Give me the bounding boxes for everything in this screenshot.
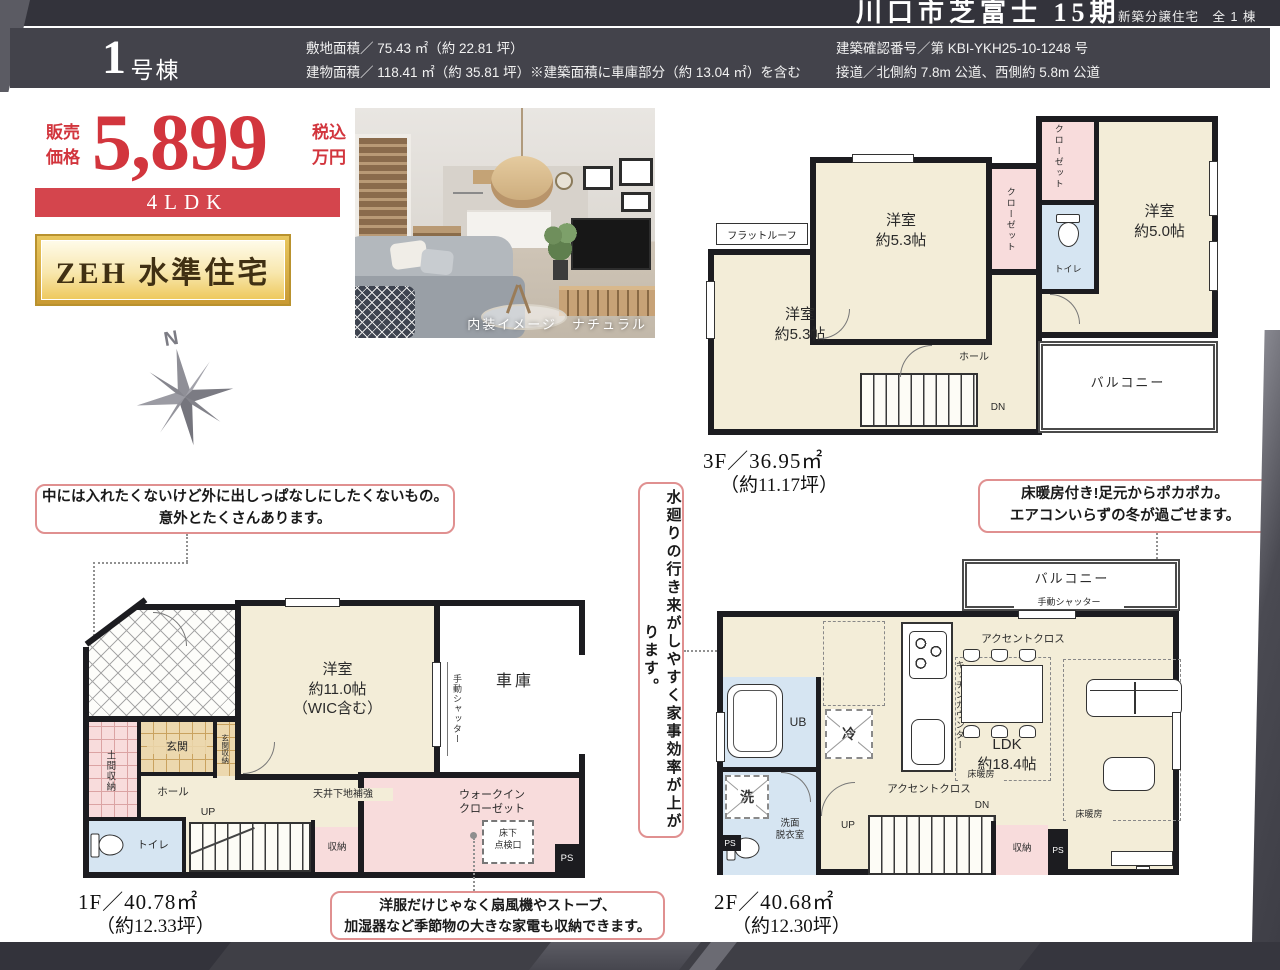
- building-area-text: 建物面積／ 118.41 ㎡（約 35.81 坪）※建築面積に車庫部分（約 13…: [306, 61, 801, 81]
- room-label: 洋室 約5.3帖: [812, 211, 990, 250]
- sink-icon: [911, 719, 945, 765]
- door-arc: [1050, 294, 1080, 324]
- window: [285, 598, 340, 607]
- room-label: ホール: [141, 786, 205, 800]
- photo-plant-pot: [553, 260, 568, 280]
- zeh-badge: ZEH 水準住宅: [35, 234, 291, 306]
- floor-type-banner: 4LDK: [35, 188, 340, 217]
- wall: [83, 647, 89, 722]
- road-access-text: 接道／北側約 7.8m 公道、西側約 5.8m 公道: [836, 61, 1100, 81]
- window: [1209, 161, 1218, 216]
- room-label: ホール: [942, 351, 1006, 364]
- fridge-space: 冷: [825, 709, 873, 759]
- compass: N: [130, 330, 240, 448]
- room-label: 玄関: [147, 740, 207, 754]
- wall: [182, 817, 186, 872]
- room-label: 冷: [840, 724, 858, 744]
- toilet-icon: [91, 834, 124, 858]
- photo-caption: 内装イメージ ナチュラル: [467, 314, 647, 333]
- wall: [1042, 200, 1094, 205]
- room-2f-main: UB 洗面 脱衣室 洗 冷 キッチンカウンター アクセントクロス: [717, 611, 1179, 875]
- room-label: 床下 点検口: [486, 828, 530, 851]
- room-label: アクセントクロス: [873, 783, 985, 797]
- wall: [405, 600, 585, 606]
- room-label: 収納: [998, 843, 1046, 855]
- photo-throw-patterned: [355, 286, 415, 338]
- photo-pillow-gray: [420, 248, 454, 275]
- price-label: 販売 価格: [46, 121, 80, 170]
- deco-bar-piece: [529, 942, 701, 970]
- kitchen-counter: [901, 622, 953, 772]
- window: [1018, 610, 1076, 619]
- room-label: ウォークイン クローゼット: [432, 788, 552, 817]
- wall: [579, 600, 585, 655]
- photo-frame-1: [583, 166, 613, 190]
- interior-photo: 内装イメージ ナチュラル: [355, 108, 655, 338]
- wall: [137, 772, 217, 776]
- window: [1209, 241, 1218, 291]
- zeh-badge-text: ZEH 水準住宅: [56, 248, 271, 292]
- window: [852, 154, 914, 163]
- ps-shaft: PS: [719, 835, 741, 851]
- door-arc: [821, 782, 855, 816]
- room-label: トイレ: [129, 839, 177, 853]
- room-label: クローゼット: [1004, 175, 1016, 265]
- room-label: 手動シャッター: [1014, 597, 1124, 609]
- tv-stand: [1136, 866, 1150, 870]
- room-1f-toilet: トイレ: [89, 821, 182, 872]
- wall: [579, 754, 585, 774]
- photo-dining-table: [413, 226, 461, 236]
- window: [432, 662, 441, 747]
- room-label: 土間収納: [103, 730, 115, 812]
- dotted-leader: [473, 838, 475, 891]
- room-label: 玄関収納: [220, 724, 230, 774]
- photo-plant-leaves: [543, 220, 577, 264]
- room-label: バルコニー: [1058, 375, 1198, 392]
- callout-floor-heating: 床暖房付き!足元からポカポカ。 エアコンいらずの冬が過ごせます。: [978, 479, 1272, 533]
- chair-icon: [991, 649, 1008, 662]
- flat-roof-tag: フラットルーフ: [716, 223, 808, 245]
- dotted-leader: [93, 562, 188, 564]
- stairs-direction-label: UP: [831, 819, 865, 832]
- bathtub-inner: [733, 690, 777, 752]
- photo-small-pendants: [453, 192, 483, 208]
- bathtub-icon: [727, 684, 783, 758]
- wall: [816, 677, 821, 875]
- photo-pendant-cord: [521, 108, 523, 160]
- top-bar: 川口市芝富士 15期 新築分譲住宅 全 1 棟: [0, 0, 1280, 26]
- room-label: 車庫: [475, 672, 555, 693]
- unit-banner: 1 号棟: [102, 30, 180, 85]
- room-label: 天井下地補強: [293, 788, 393, 801]
- dotted-leader: [186, 534, 188, 562]
- sofa-back-line: [1090, 683, 1178, 691]
- room-label: 床暖房: [959, 769, 1003, 781]
- toilet-icon: [1056, 214, 1080, 247]
- room-label: 収納: [315, 842, 359, 854]
- room-label: トイレ: [1042, 264, 1094, 276]
- stairs-direction-label: DN: [967, 799, 997, 812]
- compass-rose-icon: [122, 337, 248, 457]
- deco-right-strip: [1252, 330, 1280, 942]
- pantry-dashed-area: [823, 621, 885, 706]
- toilet-bowl: [1058, 222, 1079, 247]
- floor-hatch: 床下 点検口: [482, 820, 534, 864]
- sofa-icon: [1086, 679, 1182, 717]
- price-amount: 5,899: [92, 98, 267, 189]
- room-label: バルコニー: [1002, 571, 1142, 588]
- callout-water-flow: 水廻りの行き来がしやすく家事効率が上がります。: [638, 482, 684, 838]
- header-banner: 1 号棟 敷地面積／ 75.43 ㎡（約 22.81 坪） 建物面積／ 118.…: [10, 28, 1270, 88]
- window: [1172, 712, 1181, 770]
- real-estate-flyer: { "top_bar": { "title": "川口市芝富士 15期", "s…: [0, 0, 1280, 970]
- room-3f-closet-2: [1042, 122, 1094, 200]
- photo-frame-2: [619, 158, 653, 186]
- room-label: PS: [1052, 845, 1063, 855]
- sales-type-label: 新築分譲住宅 全 1 棟: [1118, 6, 1256, 25]
- room-label: アクセントクロス: [968, 633, 1078, 647]
- plan-1f: 土間収納 玄関 玄関収納 ホール UP トイレ 収納: [75, 592, 590, 884]
- photo-frame-3: [621, 192, 651, 212]
- toilet-bowl: [99, 835, 124, 856]
- callout-text: 水廻りの行き来がしやすく家事効率が上がります。: [639, 484, 684, 836]
- tv-icon: [1111, 851, 1173, 866]
- room-label: 洗: [738, 787, 756, 807]
- stove-icon: [909, 631, 947, 679]
- room-label: PS: [561, 853, 574, 864]
- deco-bar-piece: [0, 942, 231, 970]
- photo-tv-board: [559, 286, 655, 316]
- room-label: 洗面 脱衣室: [763, 818, 817, 843]
- wall: [137, 604, 238, 610]
- window: [716, 712, 725, 762]
- coffee-table-icon: [1103, 757, 1155, 791]
- ps-shaft: PS: [1048, 829, 1068, 871]
- room-label: 洋室 約5.0帖: [1102, 202, 1217, 241]
- photo-tv: [571, 218, 651, 270]
- room-label: 洋室 約11.0帖 （WIC含む）: [250, 660, 425, 719]
- room-2f-ub: UB: [723, 677, 818, 767]
- stairs-direction-label: DN: [983, 401, 1013, 414]
- callout-outdoor-storage: 中には入れたくないけど外に出しっぱなしにしたくないもの。 意外とたくさんあります…: [35, 484, 455, 534]
- ps-shaft: PS: [555, 844, 579, 872]
- washer-space: 洗: [725, 775, 769, 819]
- room-label: 手動シャッター: [451, 674, 464, 744]
- room-label: クローゼット: [1052, 123, 1064, 191]
- dining-table: [961, 665, 1043, 723]
- room-label: 床暖房: [1067, 809, 1111, 821]
- stairs-direction-label: UP: [193, 806, 223, 820]
- plan-3f-area-tsubo: （約11.17坪）: [720, 470, 838, 497]
- zeh-badge-inner: ZEH 水準住宅: [41, 240, 285, 300]
- room-label: フラットルーフ: [727, 227, 796, 242]
- project-title: 川口市芝富士 15期: [856, 0, 1121, 26]
- photo-pendant-lamp: [491, 156, 553, 208]
- flyer-page: 川口市芝富士 15期 新築分譲住宅 全 1 棟 1 号棟 敷地面積／ 75.43…: [0, 0, 1280, 970]
- callout-wic-storage: 洋服だけじゃなく扇風機やストーブ、 加湿器など季節物の大きな家電も収納できます。: [330, 891, 665, 940]
- stairs-2f: [868, 815, 996, 875]
- stairs-3f: [860, 373, 978, 427]
- plan-3f: トイレ 洋室 約5.0帖 クローゼット クローゼット 洋室 約5.3帖 洋室 約…: [700, 113, 1220, 445]
- shutter-bracket: 手動シャッター: [447, 662, 464, 756]
- plan-2f: バルコニー 手動シャッター UB 洗面 脱衣室 洗 冷: [712, 557, 1182, 882]
- unit-suffix: 号棟: [130, 58, 180, 83]
- chair-icon: [1019, 649, 1036, 662]
- photo-wall-clock: [555, 172, 573, 190]
- wall: [1094, 122, 1099, 289]
- room-label: PS: [724, 838, 735, 848]
- chair-icon: [963, 649, 980, 662]
- confirmation-number-text: 建築確認番号／第 KBI-YKH25-10-1248 号: [836, 37, 1088, 57]
- deco-bar-piece: [1019, 942, 1280, 970]
- plan-2f-area-tsubo: （約12.30坪）: [732, 911, 851, 938]
- room-label: UB: [781, 715, 815, 731]
- window: [706, 281, 715, 339]
- unit-number: 1: [102, 31, 126, 84]
- plan-1f-area-tsubo: （約12.33坪）: [96, 911, 215, 938]
- price-tax-note: 税込 万円: [312, 121, 346, 170]
- site-area-text: 敷地面積／ 75.43 ㎡（約 22.81 坪）: [306, 37, 524, 57]
- bottom-bar: [0, 942, 1280, 970]
